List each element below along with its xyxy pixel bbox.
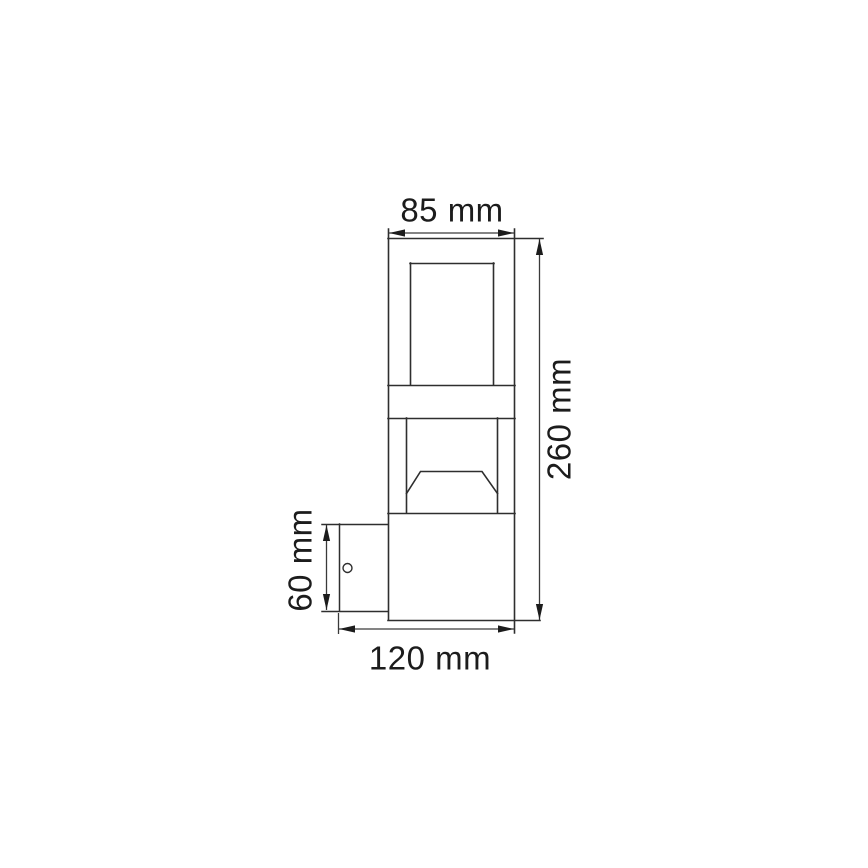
dimension-label-overall-height: 260 mm	[543, 358, 576, 480]
dimension-lines	[323, 229, 543, 634]
lamp-body	[388, 229, 543, 633]
dimension-120mm	[339, 613, 515, 634]
wall-lamp-dimension-drawing	[0, 0, 868, 868]
reflector-trapezoid	[407, 472, 498, 494]
dimension-label-bracket-height: 60 mm	[284, 508, 317, 611]
arrowhead-down	[323, 594, 330, 610]
dimension-label-top-width: 85 mm	[400, 194, 503, 227]
screw-hole	[343, 564, 352, 573]
arrowhead-right	[498, 625, 514, 632]
arrowhead-right	[498, 229, 514, 236]
arrowhead-up	[323, 525, 330, 541]
technical-drawing-page: 85 mm 260 mm 60 mm 120 mm	[0, 0, 868, 868]
dimension-label-overall-depth: 120 mm	[369, 642, 491, 675]
arrowhead-left	[389, 229, 405, 236]
wall-bracket	[322, 524, 388, 612]
arrowhead-down	[536, 604, 543, 620]
dimension-60mm	[323, 525, 330, 610]
arrowhead-up	[536, 239, 543, 255]
dimension-85mm	[389, 229, 514, 236]
arrowhead-left	[339, 625, 355, 632]
